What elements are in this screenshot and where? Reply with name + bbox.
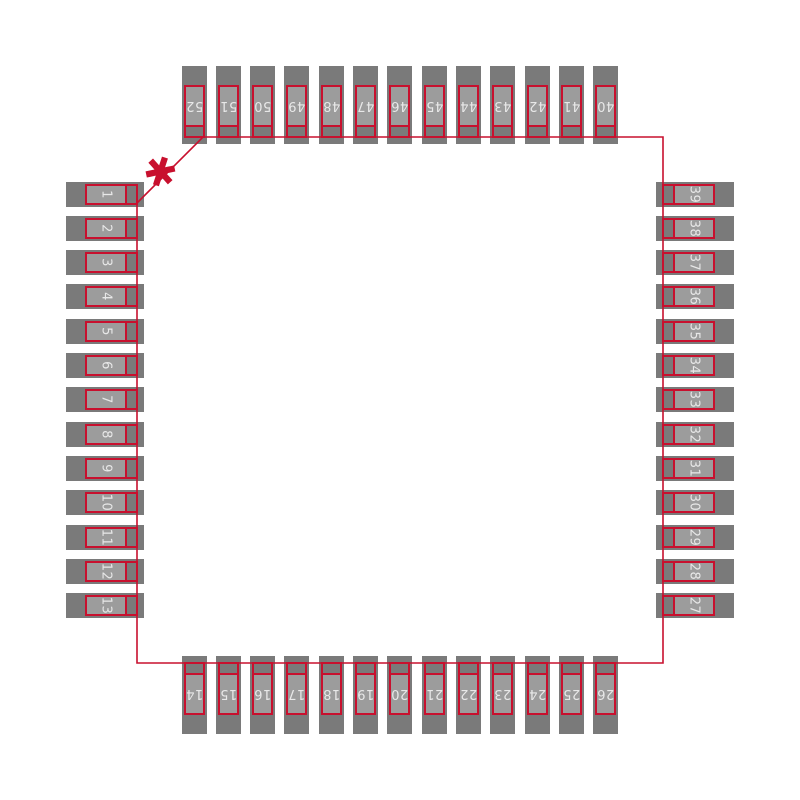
pad-8: 8 xyxy=(66,422,144,447)
pin-number-label: 23 xyxy=(494,675,511,713)
lead-outline: 39 xyxy=(662,184,715,205)
lead-outline: 21 xyxy=(424,662,445,715)
lead-outline: 42 xyxy=(527,85,548,138)
pin-number-label: 44 xyxy=(460,87,477,125)
lead-outline: 30 xyxy=(662,492,715,513)
pad-25: 25 xyxy=(559,656,584,734)
pad-48: 48 xyxy=(319,66,344,144)
lead-end-segment xyxy=(664,426,675,443)
lead-end-segment xyxy=(391,125,408,136)
lead-outline: 27 xyxy=(662,595,715,616)
lead-end-segment xyxy=(125,220,136,237)
lead-outline: 10 xyxy=(85,492,138,513)
pad-14: 14 xyxy=(182,656,207,734)
pad-52: 52 xyxy=(182,66,207,144)
pin-number-label: 26 xyxy=(597,675,614,713)
pin-number-label: 40 xyxy=(597,87,614,125)
lead-outline: 9 xyxy=(85,458,138,479)
pin-number-label: 4 xyxy=(98,278,115,316)
pad-3: 3 xyxy=(66,250,144,275)
pad-45: 45 xyxy=(422,66,447,144)
pin-number-label: 6 xyxy=(98,347,115,385)
lead-outline: 8 xyxy=(85,424,138,445)
lead-outline: 29 xyxy=(662,527,715,548)
pad-43: 43 xyxy=(490,66,515,144)
pin-number-label: 5 xyxy=(98,312,115,350)
pad-19: 19 xyxy=(353,656,378,734)
pad-32: 32 xyxy=(656,422,734,447)
lead-end-segment xyxy=(664,597,675,614)
lead-end-segment xyxy=(494,125,511,136)
pin-number-label: 17 xyxy=(288,675,305,713)
lead-outline: 16 xyxy=(252,662,273,715)
lead-outline: 34 xyxy=(662,355,715,376)
pad-36: 36 xyxy=(656,284,734,309)
pin-number-label: 24 xyxy=(529,675,546,713)
lead-outline: 18 xyxy=(321,662,342,715)
pin-number-label: 50 xyxy=(254,87,271,125)
lead-end-segment xyxy=(125,426,136,443)
pin-number-label: 25 xyxy=(563,675,580,713)
pad-31: 31 xyxy=(656,456,734,481)
pad-47: 47 xyxy=(353,66,378,144)
pad-27: 27 xyxy=(656,593,734,618)
pin-number-label: 33 xyxy=(686,381,703,419)
pad-51: 51 xyxy=(216,66,241,144)
pad-38: 38 xyxy=(656,216,734,241)
pad-49: 49 xyxy=(284,66,309,144)
lead-outline: 13 xyxy=(85,595,138,616)
pad-4: 4 xyxy=(66,284,144,309)
pin-number-label: 12 xyxy=(98,553,115,591)
pad-18: 18 xyxy=(319,656,344,734)
lead-outline: 37 xyxy=(662,252,715,273)
pad-34: 34 xyxy=(656,353,734,378)
pin1-marker-asterisk: ✱ xyxy=(138,149,182,197)
lead-outline: 23 xyxy=(492,662,513,715)
pad-26: 26 xyxy=(593,656,618,734)
lead-outline: 19 xyxy=(355,662,376,715)
lead-outline: 15 xyxy=(218,662,239,715)
lead-end-segment xyxy=(125,357,136,374)
lead-end-segment xyxy=(125,529,136,546)
pin-number-label: 21 xyxy=(426,675,443,713)
lead-end-segment xyxy=(186,125,203,136)
pad-6: 6 xyxy=(66,353,144,378)
pad-1: 1 xyxy=(66,182,144,207)
lead-end-segment xyxy=(664,494,675,511)
pin-number-label: 39 xyxy=(686,175,703,213)
pad-9: 9 xyxy=(66,456,144,481)
lead-end-segment xyxy=(494,664,511,675)
pin-number-label: 41 xyxy=(563,87,580,125)
lead-end-segment xyxy=(288,664,305,675)
pin-number-label: 20 xyxy=(391,675,408,713)
lead-outline: 4 xyxy=(85,286,138,307)
pad-7: 7 xyxy=(66,387,144,412)
pin-number-label: 16 xyxy=(254,675,271,713)
pad-22: 22 xyxy=(456,656,481,734)
lead-end-segment xyxy=(664,186,675,203)
lead-outline: 32 xyxy=(662,424,715,445)
lead-end-segment xyxy=(125,494,136,511)
pad-33: 33 xyxy=(656,387,734,412)
pin-number-label: 34 xyxy=(686,347,703,385)
lead-end-segment xyxy=(125,288,136,305)
lead-end-segment xyxy=(664,391,675,408)
lead-end-segment xyxy=(220,125,237,136)
lead-outline: 38 xyxy=(662,218,715,239)
lead-end-segment xyxy=(125,186,136,203)
lead-end-segment xyxy=(323,125,340,136)
pin-number-label: 19 xyxy=(357,675,374,713)
pad-28: 28 xyxy=(656,559,734,584)
pin-number-label: 22 xyxy=(460,675,477,713)
lead-outline: 43 xyxy=(492,85,513,138)
lead-end-segment xyxy=(220,664,237,675)
lead-outline: 5 xyxy=(85,321,138,342)
lead-end-segment xyxy=(664,323,675,340)
lead-outline: 22 xyxy=(458,662,479,715)
lead-outline: 3 xyxy=(85,252,138,273)
pin-number-label: 18 xyxy=(323,675,340,713)
lead-end-segment xyxy=(597,125,614,136)
lead-end-segment xyxy=(323,664,340,675)
pin-number-label: 11 xyxy=(98,518,115,556)
lead-end-segment xyxy=(664,357,675,374)
pin-number-label: 32 xyxy=(686,415,703,453)
lead-end-segment xyxy=(357,664,374,675)
pad-29: 29 xyxy=(656,525,734,550)
pad-12: 12 xyxy=(66,559,144,584)
lead-outline: 46 xyxy=(389,85,410,138)
lead-outline: 51 xyxy=(218,85,239,138)
pin-number-label: 51 xyxy=(220,87,237,125)
lead-outline: 45 xyxy=(424,85,445,138)
pin-number-label: 3 xyxy=(98,244,115,282)
lead-outline: 11 xyxy=(85,527,138,548)
pad-10: 10 xyxy=(66,490,144,515)
lead-end-segment xyxy=(664,288,675,305)
lead-end-segment xyxy=(125,391,136,408)
lead-end-segment xyxy=(460,664,477,675)
pin-number-label: 14 xyxy=(186,675,203,713)
pin-number-label: 31 xyxy=(686,450,703,488)
pad-40: 40 xyxy=(593,66,618,144)
lead-end-segment xyxy=(391,664,408,675)
pin-number-label: 36 xyxy=(686,278,703,316)
lead-outline: 1 xyxy=(85,184,138,205)
lead-end-segment xyxy=(426,125,443,136)
lead-outline: 36 xyxy=(662,286,715,307)
pin-number-label: 52 xyxy=(186,87,203,125)
lead-end-segment xyxy=(125,597,136,614)
pad-41: 41 xyxy=(559,66,584,144)
lead-end-segment xyxy=(254,125,271,136)
pad-15: 15 xyxy=(216,656,241,734)
lead-outline: 47 xyxy=(355,85,376,138)
lead-end-segment xyxy=(563,125,580,136)
pin-number-label: 43 xyxy=(494,87,511,125)
lead-end-segment xyxy=(288,125,305,136)
lead-outline: 40 xyxy=(595,85,616,138)
lead-end-segment xyxy=(664,220,675,237)
pin-number-label: 37 xyxy=(686,244,703,282)
pin-number-label: 49 xyxy=(288,87,305,125)
lead-outline: 28 xyxy=(662,561,715,582)
pin-number-label: 8 xyxy=(98,415,115,453)
lead-outline: 49 xyxy=(286,85,307,138)
pad-16: 16 xyxy=(250,656,275,734)
footprint-canvas: ✱ 52515049484746454443424140123456789101… xyxy=(0,0,800,800)
pin-number-label: 46 xyxy=(391,87,408,125)
pin-number-label: 9 xyxy=(98,450,115,488)
lead-outline: 2 xyxy=(85,218,138,239)
pin-number-label: 45 xyxy=(426,87,443,125)
pad-23: 23 xyxy=(490,656,515,734)
lead-end-segment xyxy=(460,125,477,136)
lead-outline: 25 xyxy=(561,662,582,715)
pad-37: 37 xyxy=(656,250,734,275)
lead-outline: 41 xyxy=(561,85,582,138)
lead-outline: 14 xyxy=(184,662,205,715)
lead-end-segment xyxy=(664,460,675,477)
pad-44: 44 xyxy=(456,66,481,144)
lead-end-segment xyxy=(254,664,271,675)
pin-number-label: 15 xyxy=(220,675,237,713)
pin-number-label: 10 xyxy=(98,484,115,522)
lead-end-segment xyxy=(357,125,374,136)
pad-13: 13 xyxy=(66,593,144,618)
pad-5: 5 xyxy=(66,319,144,344)
lead-outline: 33 xyxy=(662,389,715,410)
pad-46: 46 xyxy=(387,66,412,144)
lead-end-segment xyxy=(529,664,546,675)
pin-number-label: 38 xyxy=(686,209,703,247)
pin-number-label: 47 xyxy=(357,87,374,125)
pad-30: 30 xyxy=(656,490,734,515)
lead-outline: 35 xyxy=(662,321,715,342)
lead-outline: 12 xyxy=(85,561,138,582)
lead-end-segment xyxy=(125,323,136,340)
lead-end-segment xyxy=(664,529,675,546)
lead-end-segment xyxy=(125,563,136,580)
pad-35: 35 xyxy=(656,319,734,344)
lead-outline: 26 xyxy=(595,662,616,715)
lead-outline: 44 xyxy=(458,85,479,138)
pad-42: 42 xyxy=(525,66,550,144)
lead-end-segment xyxy=(186,664,203,675)
lead-end-segment xyxy=(664,254,675,271)
pin-number-label: 2 xyxy=(98,209,115,247)
pad-24: 24 xyxy=(525,656,550,734)
pad-39: 39 xyxy=(656,182,734,207)
lead-outline: 52 xyxy=(184,85,205,138)
package-body-outline xyxy=(137,137,663,663)
lead-outline: 31 xyxy=(662,458,715,479)
lead-outline: 20 xyxy=(389,662,410,715)
lead-outline: 7 xyxy=(85,389,138,410)
lead-outline: 6 xyxy=(85,355,138,376)
lead-outline: 24 xyxy=(527,662,548,715)
pin-number-label: 27 xyxy=(686,587,703,625)
pad-17: 17 xyxy=(284,656,309,734)
lead-outline: 48 xyxy=(321,85,342,138)
pin-number-label: 48 xyxy=(323,87,340,125)
pin-number-label: 13 xyxy=(98,587,115,625)
lead-end-segment xyxy=(664,563,675,580)
lead-end-segment xyxy=(529,125,546,136)
pad-2: 2 xyxy=(66,216,144,241)
pad-11: 11 xyxy=(66,525,144,550)
lead-end-segment xyxy=(125,460,136,477)
pin-number-label: 28 xyxy=(686,553,703,591)
pin-number-label: 1 xyxy=(98,175,115,213)
lead-end-segment xyxy=(563,664,580,675)
lead-end-segment xyxy=(125,254,136,271)
pin-number-label: 42 xyxy=(529,87,546,125)
lead-outline: 50 xyxy=(252,85,273,138)
lead-outline: 17 xyxy=(286,662,307,715)
pad-50: 50 xyxy=(250,66,275,144)
lead-end-segment xyxy=(597,664,614,675)
pin-number-label: 7 xyxy=(98,381,115,419)
lead-end-segment xyxy=(426,664,443,675)
pad-20: 20 xyxy=(387,656,412,734)
pin-number-label: 30 xyxy=(686,484,703,522)
pin-number-label: 29 xyxy=(686,518,703,556)
pad-21: 21 xyxy=(422,656,447,734)
pin-number-label: 35 xyxy=(686,312,703,350)
